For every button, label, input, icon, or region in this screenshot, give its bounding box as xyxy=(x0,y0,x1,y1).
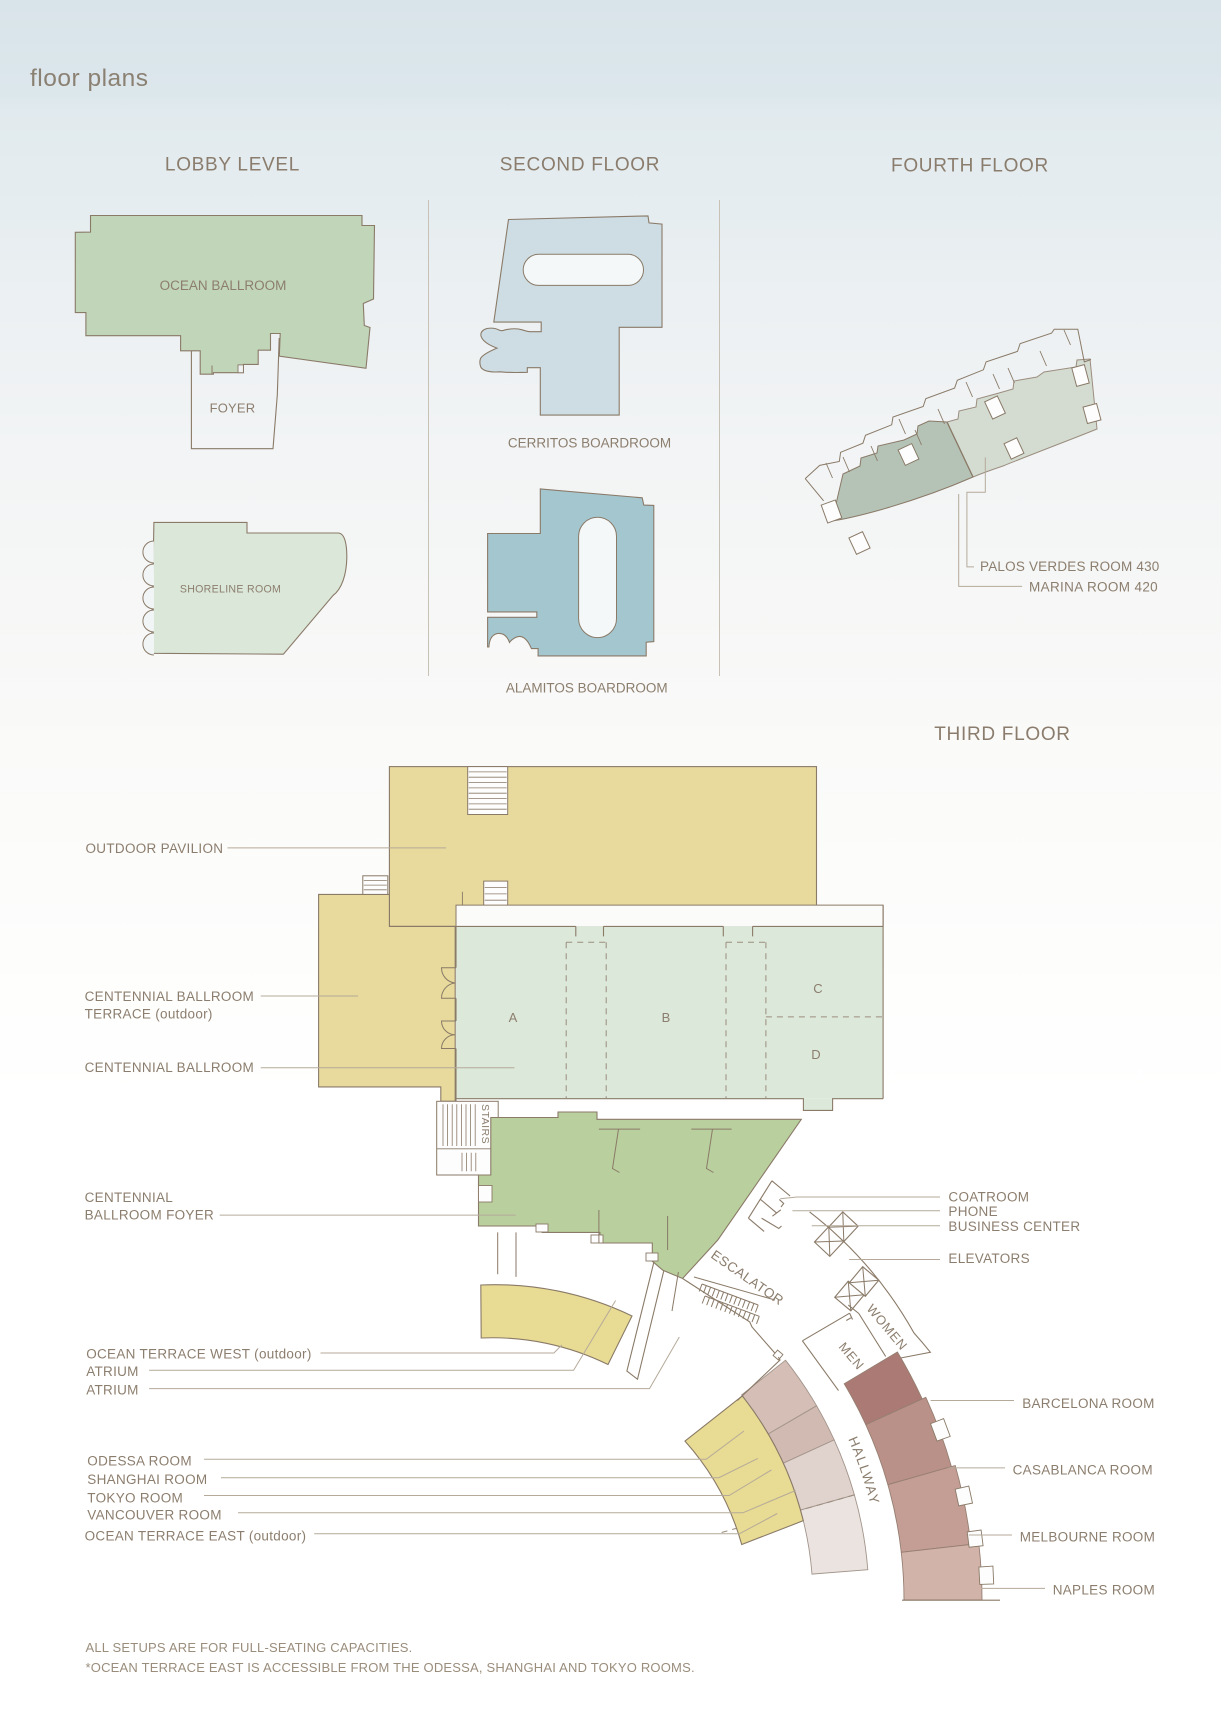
svg-text:CENTENNIAL: CENTENNIAL xyxy=(85,1190,174,1205)
svg-text:C: C xyxy=(813,981,822,996)
svg-text:FOURTH FLOOR: FOURTH FLOOR xyxy=(891,156,1049,177)
svg-text:floor plans: floor plans xyxy=(30,65,149,92)
svg-text:PHONE: PHONE xyxy=(948,1204,998,1219)
svg-text:ATRIUM: ATRIUM xyxy=(86,1383,139,1398)
svg-text:ATRIUM: ATRIUM xyxy=(86,1364,139,1379)
svg-text:MEN: MEN xyxy=(836,1339,868,1373)
svg-text:SHORELINE ROOM: SHORELINE ROOM xyxy=(180,584,281,596)
svg-text:BUSINESS CENTER: BUSINESS CENTER xyxy=(948,1219,1080,1234)
svg-text:SHANGHAI ROOM: SHANGHAI ROOM xyxy=(87,1472,207,1487)
svg-text:B: B xyxy=(662,1010,671,1025)
svg-text:ELEVATORS: ELEVATORS xyxy=(948,1251,1029,1266)
svg-text:NAPLES ROOM: NAPLES ROOM xyxy=(1053,1583,1155,1598)
svg-text:LOBBY LEVEL: LOBBY LEVEL xyxy=(165,155,300,176)
svg-text:COATROOM: COATROOM xyxy=(948,1190,1029,1205)
svg-text:CENTENNIAL BALLROOM: CENTENNIAL BALLROOM xyxy=(85,1060,255,1075)
svg-text:BALLROOM FOYER: BALLROOM FOYER xyxy=(85,1208,214,1223)
svg-text:ALL SETUPS ARE FOR FULL-SEATIN: ALL SETUPS ARE FOR FULL-SEATING CAPACITI… xyxy=(86,1640,413,1655)
svg-text:PALOS VERDES ROOM 430: PALOS VERDES ROOM 430 xyxy=(980,559,1160,574)
svg-text:WOMEN: WOMEN xyxy=(864,1301,911,1353)
svg-text:FOYER: FOYER xyxy=(210,401,256,416)
svg-text:THIRD FLOOR: THIRD FLOOR xyxy=(934,724,1070,745)
svg-text:TERRACE (outdoor): TERRACE (outdoor) xyxy=(85,1007,213,1022)
svg-text:OCEAN TERRACE WEST (outdoor): OCEAN TERRACE WEST (outdoor) xyxy=(86,1347,311,1362)
svg-text:ESCALATOR: ESCALATOR xyxy=(708,1247,786,1308)
svg-text:OCEAN TERRACE EAST (outdoor): OCEAN TERRACE EAST (outdoor) xyxy=(85,1529,307,1544)
svg-text:CASABLANCA ROOM: CASABLANCA ROOM xyxy=(1013,1463,1153,1478)
svg-text:SECOND FLOOR: SECOND FLOOR xyxy=(500,155,660,176)
svg-text:VANCOUVER ROOM: VANCOUVER ROOM xyxy=(87,1508,221,1523)
svg-text:TOKYO ROOM: TOKYO ROOM xyxy=(87,1490,183,1505)
svg-text:CENTENNIAL BALLROOM: CENTENNIAL BALLROOM xyxy=(85,989,255,1004)
svg-text:OCEAN BALLROOM: OCEAN BALLROOM xyxy=(160,278,287,293)
svg-text:A: A xyxy=(509,1010,518,1025)
svg-text:MELBOURNE ROOM: MELBOURNE ROOM xyxy=(1020,1530,1155,1545)
svg-text:MARINA ROOM 420: MARINA ROOM 420 xyxy=(1029,580,1158,595)
svg-text:STAIRS: STAIRS xyxy=(479,1104,491,1144)
svg-text:OUTDOOR PAVILION: OUTDOOR PAVILION xyxy=(86,841,224,856)
svg-text:ODESSA ROOM: ODESSA ROOM xyxy=(87,1454,192,1469)
svg-text:*OCEAN TERRACE EAST IS ACCESSI: *OCEAN TERRACE EAST IS ACCESSIBLE FROM T… xyxy=(86,1660,695,1675)
svg-text:BARCELONA ROOM: BARCELONA ROOM xyxy=(1022,1396,1154,1411)
svg-text:D: D xyxy=(811,1047,820,1062)
svg-text:ALAMITOS BOARDROOM: ALAMITOS BOARDROOM xyxy=(506,681,668,696)
svg-text:CERRITOS BOARDROOM: CERRITOS BOARDROOM xyxy=(508,436,671,451)
